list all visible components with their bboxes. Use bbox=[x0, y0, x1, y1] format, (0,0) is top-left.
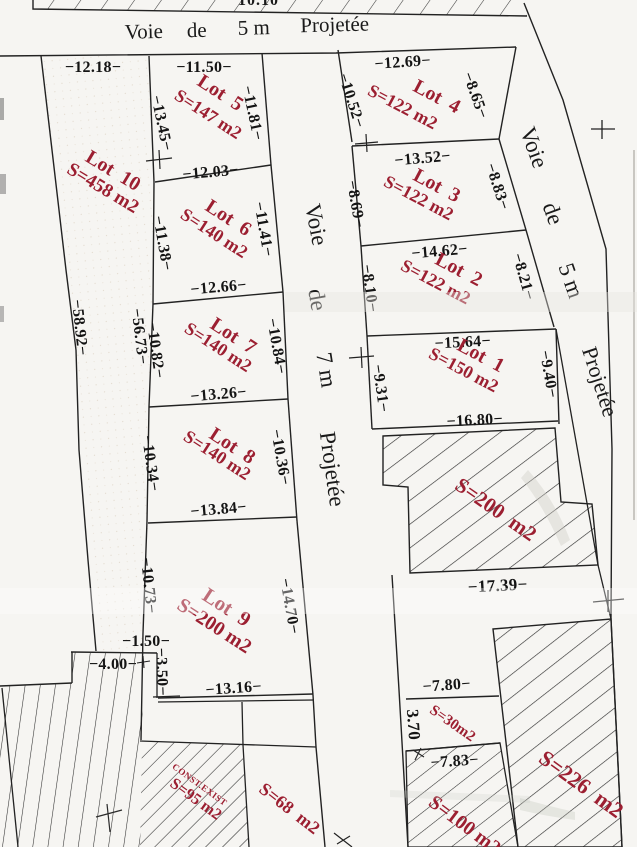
svg-text:−12.18−: −12.18− bbox=[65, 59, 121, 76]
svg-text:de: de bbox=[187, 18, 207, 43]
svg-text:10.10: 10.10 bbox=[238, 0, 279, 9]
svg-text:−3.50−: −3.50− bbox=[152, 648, 171, 697]
svg-text:Voie: Voie bbox=[124, 19, 163, 44]
svg-text:−7.80−: −7.80− bbox=[422, 675, 471, 695]
svg-text:5 m: 5 m bbox=[237, 15, 270, 40]
svg-text:Projetée: Projetée bbox=[300, 11, 369, 37]
svg-text:−16.80−: −16.80− bbox=[446, 411, 503, 431]
svg-text:3.70: 3.70 bbox=[403, 709, 424, 741]
